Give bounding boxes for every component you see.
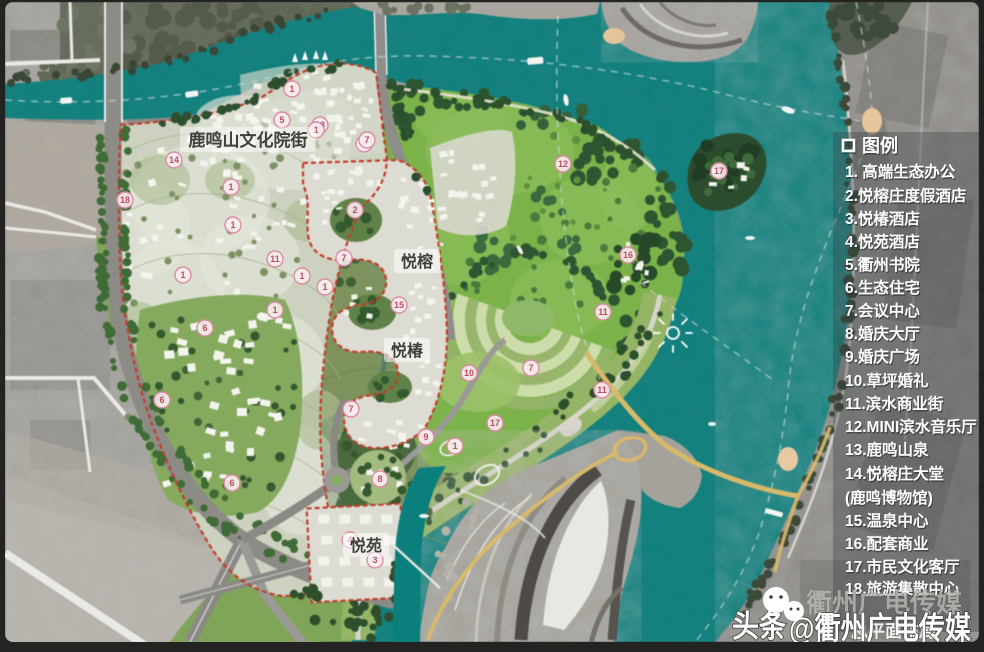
svg-text:16.配套商业: 16.配套商业 [845, 534, 929, 553]
svg-text:悦苑: 悦苑 [350, 536, 382, 555]
svg-text:1: 1 [180, 270, 185, 280]
svg-text:2: 2 [352, 205, 357, 215]
svg-text:11: 11 [598, 307, 608, 317]
svg-text:@衢州广电传媒: @衢州广电传媒 [789, 611, 972, 646]
svg-text:1: 1 [289, 84, 294, 94]
svg-text:图例: 图例 [862, 135, 898, 156]
svg-text:1: 1 [299, 271, 304, 281]
svg-text:3.悦椿酒店: 3.悦椿酒店 [845, 209, 920, 228]
svg-text:6: 6 [229, 478, 234, 488]
svg-text:14: 14 [169, 155, 179, 165]
svg-text:9: 9 [423, 432, 428, 442]
svg-text:1. 高端生态办公: 1. 高端生态办公 [845, 162, 956, 181]
svg-text:13.鹿鸣山泉: 13.鹿鸣山泉 [845, 440, 929, 459]
svg-text:1: 1 [230, 220, 235, 230]
svg-text:4.悦苑酒店: 4.悦苑酒店 [845, 232, 920, 251]
svg-text:(鹿鸣博物馆): (鹿鸣博物馆) [845, 488, 933, 507]
svg-text:鹿鸣山文化院街: 鹿鸣山文化院街 [189, 130, 308, 150]
svg-text:5.衢州书院: 5.衢州书院 [845, 255, 920, 274]
svg-text:6.生态住宅: 6.生态住宅 [845, 278, 920, 297]
svg-text:8: 8 [377, 474, 382, 484]
svg-text:17.市民文化客厅: 17.市民文化客厅 [845, 557, 960, 576]
svg-text:12.MINI滨水音乐厅: 12.MINI滨水音乐厅 [845, 417, 977, 436]
svg-text:12: 12 [558, 159, 568, 169]
svg-text:11: 11 [270, 254, 280, 264]
svg-text:头条: 头条 [732, 609, 786, 644]
svg-text:10.草坪婚礼: 10.草坪婚礼 [845, 371, 929, 390]
svg-text:17: 17 [714, 166, 724, 176]
svg-text:1: 1 [272, 305, 277, 315]
svg-text:6: 6 [159, 395, 164, 405]
svg-text:1: 1 [452, 441, 457, 451]
svg-text:悦椿: 悦椿 [391, 341, 424, 360]
svg-text:9.婚庆广场: 9.婚庆广场 [845, 347, 920, 366]
svg-text:11.滨水商业街: 11.滨水商业街 [845, 394, 944, 413]
svg-text:15: 15 [394, 300, 404, 310]
svg-text:7.会议中心: 7.会议中心 [845, 301, 920, 320]
svg-text:8.婚庆大厅: 8.婚庆大厅 [845, 324, 920, 343]
svg-text:1: 1 [228, 182, 233, 192]
svg-text:15.温泉中心: 15.温泉中心 [845, 511, 929, 530]
svg-text:7: 7 [348, 404, 353, 414]
svg-text:10: 10 [464, 368, 474, 378]
svg-text:2.悦榕庄度假酒店: 2.悦榕庄度假酒店 [845, 186, 966, 205]
svg-text:14.悦榕庄大堂: 14.悦榕庄大堂 [845, 464, 944, 483]
svg-text:5: 5 [279, 115, 284, 125]
svg-text:7: 7 [364, 135, 369, 145]
svg-text:1: 1 [322, 282, 327, 292]
svg-text:7: 7 [528, 363, 533, 373]
svg-text:7: 7 [341, 253, 346, 263]
svg-text:悦榕: 悦榕 [401, 252, 434, 271]
svg-text:18: 18 [120, 195, 130, 205]
svg-text:6: 6 [202, 323, 207, 333]
svg-text:16: 16 [623, 250, 633, 260]
svg-text:17: 17 [490, 418, 500, 428]
svg-text:11: 11 [597, 385, 607, 395]
